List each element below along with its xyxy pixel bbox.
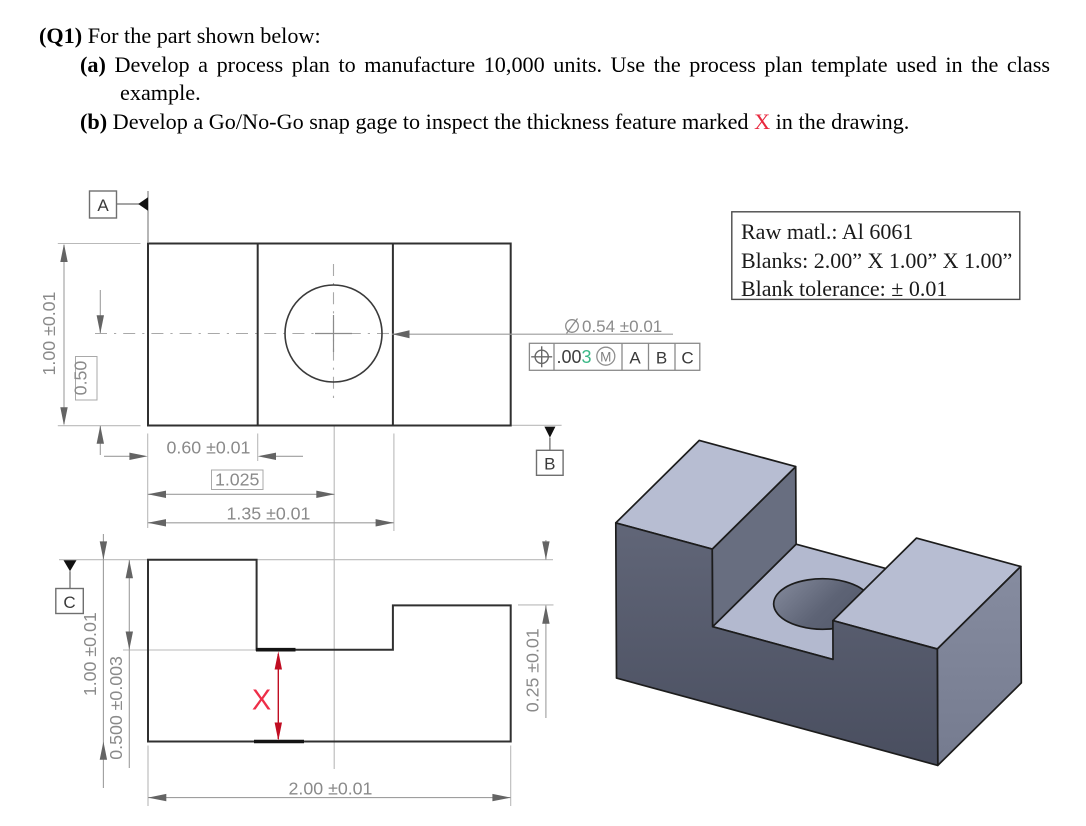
svg-text:.003: .003 <box>557 347 592 367</box>
svg-text:B: B <box>544 455 555 474</box>
svg-text:Raw matl.: Al 6061: Raw matl.: Al 6061 <box>741 219 913 244</box>
svg-text:C: C <box>681 349 693 368</box>
svg-text:A: A <box>97 196 109 215</box>
svg-text:2.00 ±0.01: 2.00 ±0.01 <box>289 779 373 799</box>
svg-text:M: M <box>600 350 611 365</box>
svg-text:1.35 ±0.01: 1.35 ±0.01 <box>227 504 311 524</box>
svg-text:0.25 ±0.01: 0.25 ±0.01 <box>523 628 543 712</box>
svg-text:0.50: 0.50 <box>70 361 90 396</box>
svg-text:0.60 ±0.01: 0.60 ±0.01 <box>167 438 251 458</box>
svg-text:0.54 ±0.01: 0.54 ±0.01 <box>582 317 662 336</box>
svg-text:1.00 ±0.01: 1.00 ±0.01 <box>80 612 100 696</box>
svg-text:1.025: 1.025 <box>215 470 260 490</box>
svg-text:A: A <box>629 349 641 368</box>
svg-text:Blanks: 2.00” X 1.00” X 1.00”: Blanks: 2.00” X 1.00” X 1.00” <box>741 248 1012 273</box>
svg-text:0.500 ±0.003: 0.500 ±0.003 <box>106 656 126 760</box>
svg-text:B: B <box>656 349 667 368</box>
svg-text:Blank tolerance: ± 0.01: Blank tolerance: ± 0.01 <box>741 276 947 301</box>
svg-text:1.00 ±0.01: 1.00 ±0.01 <box>39 291 59 375</box>
svg-text:C: C <box>63 593 75 612</box>
svg-text:X: X <box>252 685 271 717</box>
